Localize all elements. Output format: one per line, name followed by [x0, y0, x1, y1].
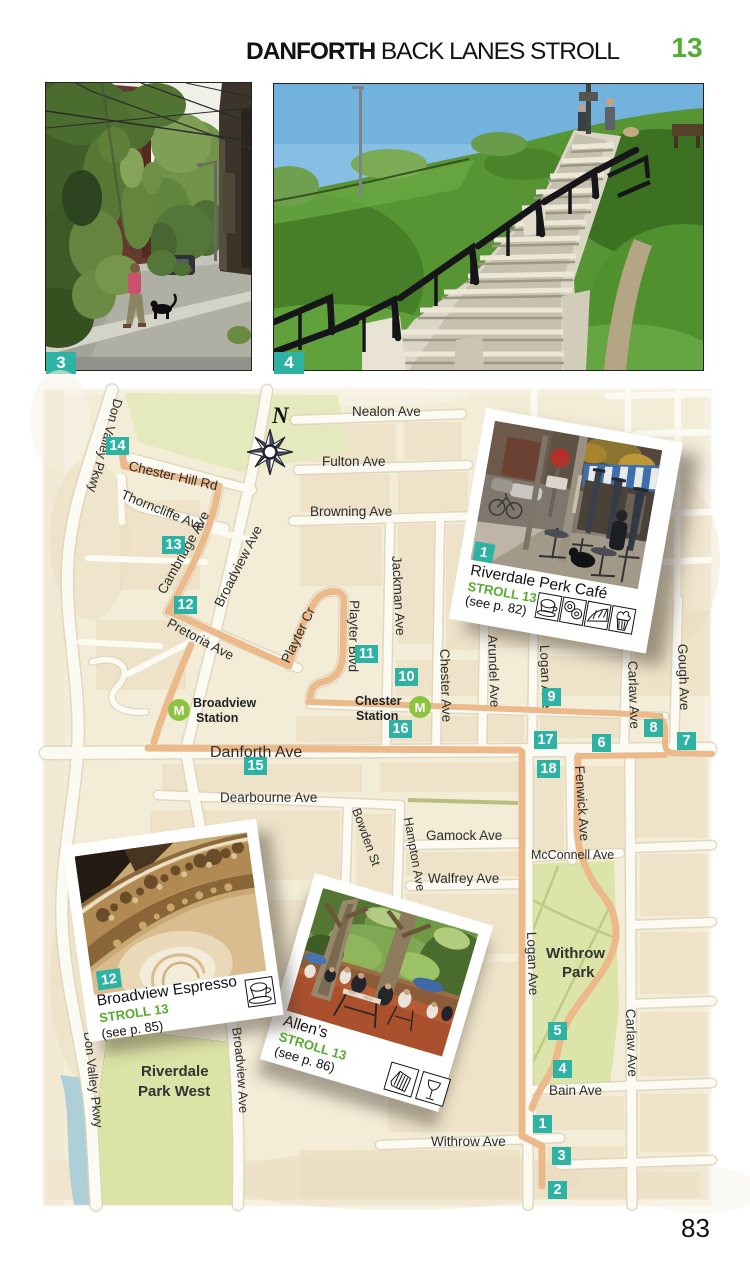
- svg-text:Withrow: Withrow: [546, 945, 605, 962]
- svg-text:Carlaw Ave: Carlaw Ave: [623, 1009, 640, 1078]
- svg-text:Nealon Ave: Nealon Ave: [352, 404, 421, 419]
- svg-text:Fulton Ave: Fulton Ave: [322, 454, 386, 469]
- svg-text:M: M: [174, 703, 185, 718]
- svg-text:Park West: Park West: [138, 1083, 210, 1100]
- svg-text:Browning Ave: Browning Ave: [310, 504, 392, 519]
- svg-text:Bain Ave: Bain Ave: [549, 1083, 602, 1098]
- svg-text:Station: Station: [196, 711, 238, 725]
- svg-text:Chester: Chester: [355, 694, 402, 708]
- svg-text:Logan Ave: Logan Ave: [524, 932, 541, 996]
- svg-text:Carlaw Ave: Carlaw Ave: [625, 661, 642, 730]
- svg-text:Gamock Ave: Gamock Ave: [426, 828, 502, 843]
- svg-text:Walfrey Ave: Walfrey Ave: [428, 871, 499, 886]
- svg-text:Gough Ave: Gough Ave: [675, 644, 692, 711]
- svg-text:Riverdale: Riverdale: [141, 1063, 209, 1080]
- svg-text:McConnell Ave: McConnell Ave: [531, 848, 614, 862]
- svg-text:Withrow Ave: Withrow Ave: [431, 1134, 506, 1149]
- svg-text:Dearbourne Ave: Dearbourne Ave: [220, 790, 317, 805]
- svg-text:Broadview: Broadview: [193, 696, 256, 710]
- svg-text:Park: Park: [562, 964, 595, 981]
- svg-text:Arundel Ave: Arundel Ave: [485, 635, 503, 708]
- svg-text:Chester Ave: Chester Ave: [437, 649, 455, 723]
- svg-text:M: M: [415, 700, 426, 715]
- svg-text:N: N: [271, 403, 290, 428]
